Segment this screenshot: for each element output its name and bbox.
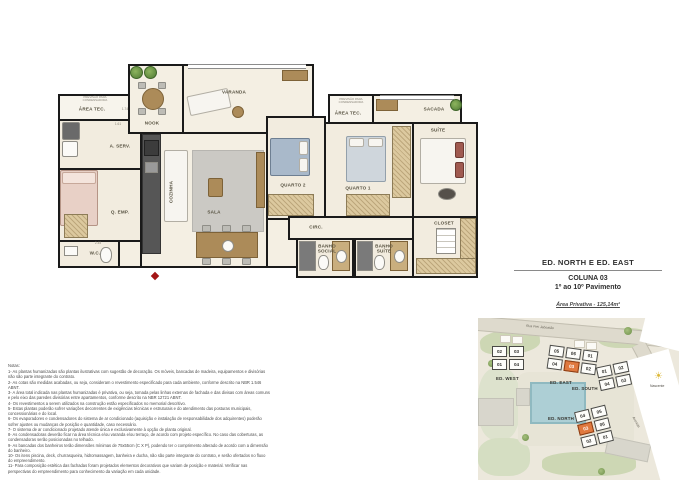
amenity-building [516, 388, 530, 406]
chair-icon [158, 82, 166, 89]
building-label-ed-south: ED. SOUTH [572, 386, 598, 391]
note-item: 5- Estas plantas poderão sofrer variaçõe… [8, 406, 270, 416]
chair-icon [222, 258, 231, 265]
room-label-quarto-1: QUARTO 1 [345, 186, 370, 191]
nook-table-icon [142, 88, 164, 110]
chair-icon [138, 82, 146, 89]
window [380, 95, 454, 100]
unit-box: 06 [565, 347, 581, 360]
kitchen-sink-icon [145, 162, 158, 173]
room-label-closet: CLOSET [434, 221, 454, 226]
unit-box-highlighted: 03 [563, 360, 579, 373]
column-label: COLUNA 03 [512, 275, 664, 282]
note-item: 8- As condensadoras deverão ficar na áre… [8, 432, 270, 442]
pillow-icon [62, 172, 96, 184]
toilet-icon [100, 247, 112, 263]
area-tec-note: PREVISÃO PARA CONDENSADORA [74, 96, 116, 102]
bench-icon [376, 99, 398, 111]
pillow-icon [455, 162, 464, 178]
tree-icon [624, 327, 632, 335]
neighbor-lot [500, 335, 511, 343]
private-area-label: Área Privativa - 125,14m² [512, 302, 664, 308]
parking-area [478, 398, 514, 426]
washer-icon [62, 122, 80, 140]
chair-icon [242, 258, 251, 265]
chair-icon [138, 108, 146, 115]
building-title: ED. NORTH E ED. EAST [512, 258, 664, 267]
room-label-a-serv: A. SERV. [110, 144, 131, 149]
toilet-icon [318, 255, 329, 270]
note-item: 6- Os evaporadores e condensadores do si… [8, 416, 270, 426]
pillow-icon [349, 138, 364, 147]
building-label-ed-north: ED. NORTH [548, 416, 574, 421]
centerpiece-icon [222, 240, 234, 252]
note-item: 1- As plantas humanizadas são plantas il… [8, 369, 270, 379]
room-circulacao [288, 216, 414, 240]
room-label-q-emp: Q. EMP. [111, 210, 129, 215]
notes-block: Notas: 1- As plantas humanizadas são pla… [8, 363, 270, 474]
notes-title: Notas: [8, 363, 270, 368]
dimension-label: 1.61 [115, 122, 121, 126]
tree-icon [522, 434, 529, 441]
plant-icon [130, 66, 143, 79]
note-item: 2- As cotas são medidas acabadas, ou sej… [8, 380, 270, 390]
site-plan: Rua Frei Jaboatão Avenida 02 03 01 04 ED… [478, 318, 679, 480]
unit-box: 04 [547, 358, 563, 371]
pillow-icon [455, 142, 464, 158]
room-label-sacada: SACADA [424, 107, 445, 112]
unit-box: 02 [492, 346, 507, 357]
note-item: 10- Os itens piscina, deck, churrasqueir… [8, 453, 270, 463]
tv-console-icon [256, 152, 265, 208]
chair-icon [202, 258, 211, 265]
chair-icon [242, 225, 251, 232]
chair-icon [158, 108, 166, 115]
ottoman-icon [438, 188, 456, 200]
dimension-label: 2.45 [95, 241, 101, 245]
sun-icon: ☀ [654, 372, 663, 382]
area-tec-note: PREVISÃO PARA CONDENSADORA [330, 98, 372, 104]
plant-icon [144, 66, 157, 79]
bench-icon [282, 70, 308, 81]
note-item: 3- A área total indicada nas plantas hum… [8, 390, 270, 400]
floors-label: 1º ao 10º Pavimento [512, 284, 664, 291]
unit-box: 02 [580, 434, 597, 448]
stove-icon [144, 140, 159, 156]
wardrobe-icon [64, 214, 88, 238]
wardrobe-icon [268, 194, 314, 216]
wardrobe-icon [392, 126, 411, 198]
shoe-rack-icon [436, 228, 456, 254]
unit-box: 02 [580, 362, 596, 375]
unit-box: 01 [492, 359, 507, 370]
pillow-icon [299, 158, 308, 172]
room-label-suite: SUÍTE [431, 128, 446, 133]
entrance-marker-icon [151, 272, 159, 280]
unit-box: 02 [612, 361, 629, 375]
room-label-varanda: VARANDA [222, 90, 246, 95]
unit-box: 01 [582, 349, 598, 362]
unit-box: 04 [509, 359, 524, 370]
unit-box: 01 [596, 364, 613, 378]
sink-icon [64, 246, 78, 256]
room-label-nook: NOOK [145, 121, 160, 126]
dryer-icon [62, 141, 78, 157]
pillow-icon [299, 141, 308, 155]
chair-icon [222, 225, 231, 232]
plant-icon [450, 99, 462, 111]
wardrobe-icon [460, 218, 476, 260]
building-label-ed-west: ED. WEST [496, 376, 519, 381]
dimension-label: 1.74 [122, 107, 128, 111]
wardrobe-icon [346, 194, 390, 216]
neighbor-lot [512, 336, 523, 344]
room-label-area-tec-2: ÁREA TEC. [335, 111, 361, 116]
neighbor-lot [574, 340, 585, 348]
sun-label: Nascente [650, 384, 664, 388]
tree-icon [598, 468, 605, 475]
room-label-banho-social: BANHO SOCIAL [312, 244, 342, 255]
floor-plan-sheet: PREVISÃO PARA CONDENSADORA ÁREA TEC. 1.7… [0, 0, 679, 480]
room-label-cozinha: COZINHA [169, 181, 174, 203]
room-label-area-tec: ÁREA TEC. [79, 107, 105, 112]
building-label-ed-east: ED. EAST [550, 380, 572, 385]
side-table-icon [232, 106, 244, 118]
unit-box: 05 [548, 345, 564, 358]
toilet-icon [374, 255, 385, 270]
room-label-wc: W.C. [90, 251, 101, 256]
room-label-circ: CIRC. [309, 225, 323, 230]
note-item: 9- As bancadas dos banheiros terão dimen… [8, 443, 270, 453]
pillow-icon [368, 138, 383, 147]
rug-icon [192, 150, 264, 232]
note-item: 11- Para composição estética das fachada… [8, 463, 270, 473]
divider [514, 270, 662, 271]
coffee-table-icon [208, 178, 223, 197]
info-box: ED. NORTH E ED. EAST COLUNA 03 1º ao 10º… [512, 258, 664, 308]
neighbor-lot [586, 342, 597, 350]
wardrobe-icon [416, 258, 476, 274]
room-label-banho-suite: BANHO SUÍTE [369, 244, 399, 255]
room-label-sala: SALA [207, 210, 220, 215]
unit-box: 03 [509, 346, 524, 357]
chair-icon [202, 225, 211, 232]
building-ed-west: 02 03 01 04 [492, 346, 524, 370]
room-label-quarto-2: QUARTO 2 [280, 183, 305, 188]
window [188, 64, 306, 69]
